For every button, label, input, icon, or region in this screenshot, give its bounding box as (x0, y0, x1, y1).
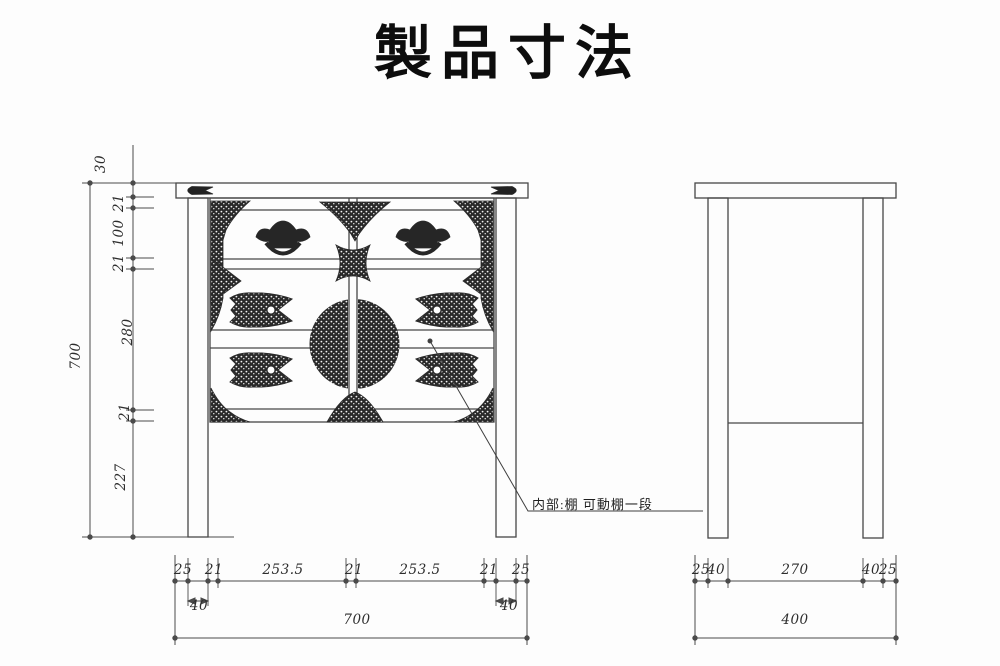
dimension-label: 25 (174, 562, 192, 578)
dimension-label: 40 (707, 562, 725, 578)
dimension-label: 30 (93, 155, 109, 173)
dimension-label: 21 (111, 254, 127, 272)
dimension-label: 700 (68, 342, 84, 369)
lock-medallion-icon (310, 297, 400, 391)
interior-shelf-note: 内部:棚 可動棚一段 (532, 494, 653, 513)
dimension-label: 227 (113, 463, 129, 490)
board-cap-icon (188, 187, 213, 195)
dimension-label: 253.5 (399, 562, 440, 578)
top-center-plate-icon (320, 202, 390, 241)
dimension-label: 270 (781, 562, 808, 578)
board-cap-icon (491, 187, 516, 195)
bottom-center-plate-icon (327, 392, 383, 422)
dimension-drawing (0, 0, 1000, 666)
dimension-label: 700 (343, 612, 370, 628)
dimension-label: 21 (205, 562, 223, 578)
dimension-label: 40 (500, 598, 518, 614)
dimension-label: 100 (111, 219, 127, 246)
dimension-label: 25 (879, 562, 897, 578)
dimension-label: 25 (512, 562, 530, 578)
dimension-label: 40 (190, 598, 208, 614)
side-view (695, 183, 896, 538)
dimension-label: 280 (120, 318, 136, 345)
technical-drawing-page: 製品寸法 (0, 0, 1000, 666)
dimension-label: 400 (781, 612, 808, 628)
dimension-label: 21 (345, 562, 363, 578)
dimension-label: 40 (862, 562, 880, 578)
dimension-label: 253.5 (262, 562, 303, 578)
dimension-label: 21 (480, 562, 498, 578)
strip-junction-plate-icon (336, 245, 370, 281)
dimension-label: 21 (117, 403, 133, 421)
dimension-label: 21 (111, 194, 127, 212)
